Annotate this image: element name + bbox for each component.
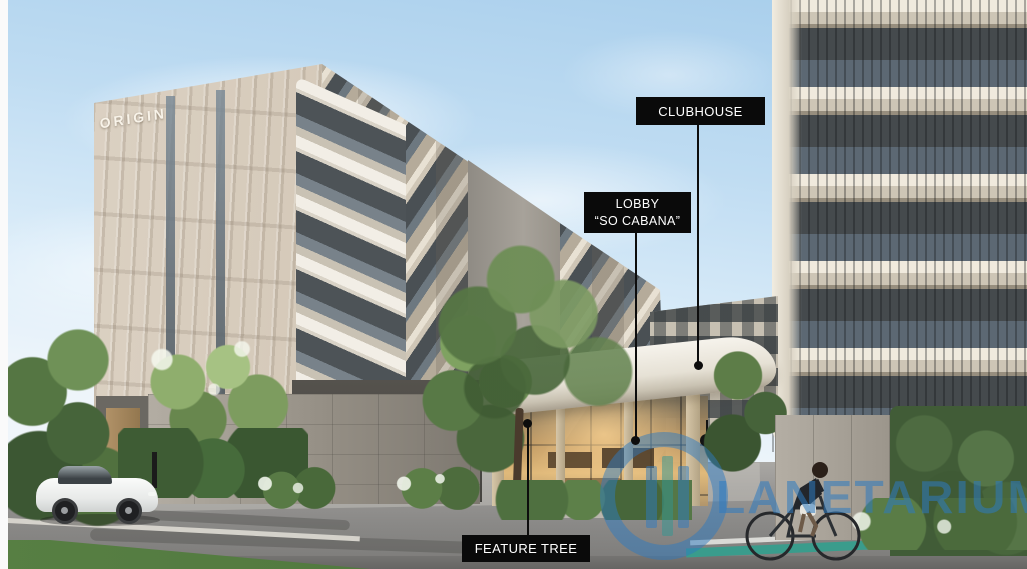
car-cabin [58,466,112,484]
feature-tree-label-text: FEATURE TREE [475,541,578,556]
planetarium-watermark-text: LANETARIUM [716,470,1027,524]
clubhouse-label: CLUBHOUSE [636,97,765,125]
planetarium-logo-bar [678,466,689,528]
clubhouse-leader-dot [694,361,703,370]
feature-tree-leader-line [527,427,529,535]
clubhouse-leader-line [697,125,699,365]
feature-tree-label: FEATURE TREE [462,535,590,562]
flower-bed [374,462,494,510]
lobby-label-line1: LOBBY [595,196,681,213]
planetarium-logo-bar [662,456,673,536]
lobby-label-text: LOBBY “SO CABANA” [595,196,681,230]
lobby-leader-line [635,233,637,439]
lobby-leader-dot [631,436,640,445]
flower-bed [232,466,342,510]
bollard-light [152,452,157,488]
car-wheel-hub [61,507,68,514]
architectural-rendering-scene: ORIGIN SO [0,0,1027,569]
planetarium-logo-bar [646,466,657,528]
lobby-label-line2: “SO CABANA” [595,213,681,230]
left-edge-margin [0,0,8,569]
feature-tree-leader-dot [523,419,532,428]
car-headlight [148,492,156,496]
lobby-label: LOBBY “SO CABANA” [584,192,691,233]
clubhouse-label-text: CLUBHOUSE [658,104,743,119]
car-wheel-hub [125,507,132,514]
tower-balcony-railings [772,0,1027,452]
